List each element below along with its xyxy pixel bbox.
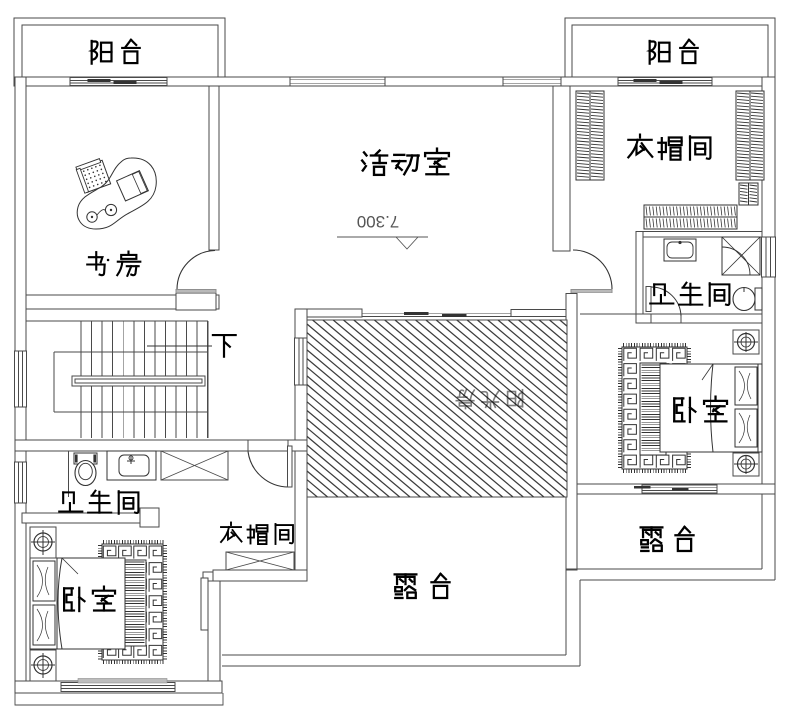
svg-text:7.300: 7.300 [357, 212, 400, 231]
